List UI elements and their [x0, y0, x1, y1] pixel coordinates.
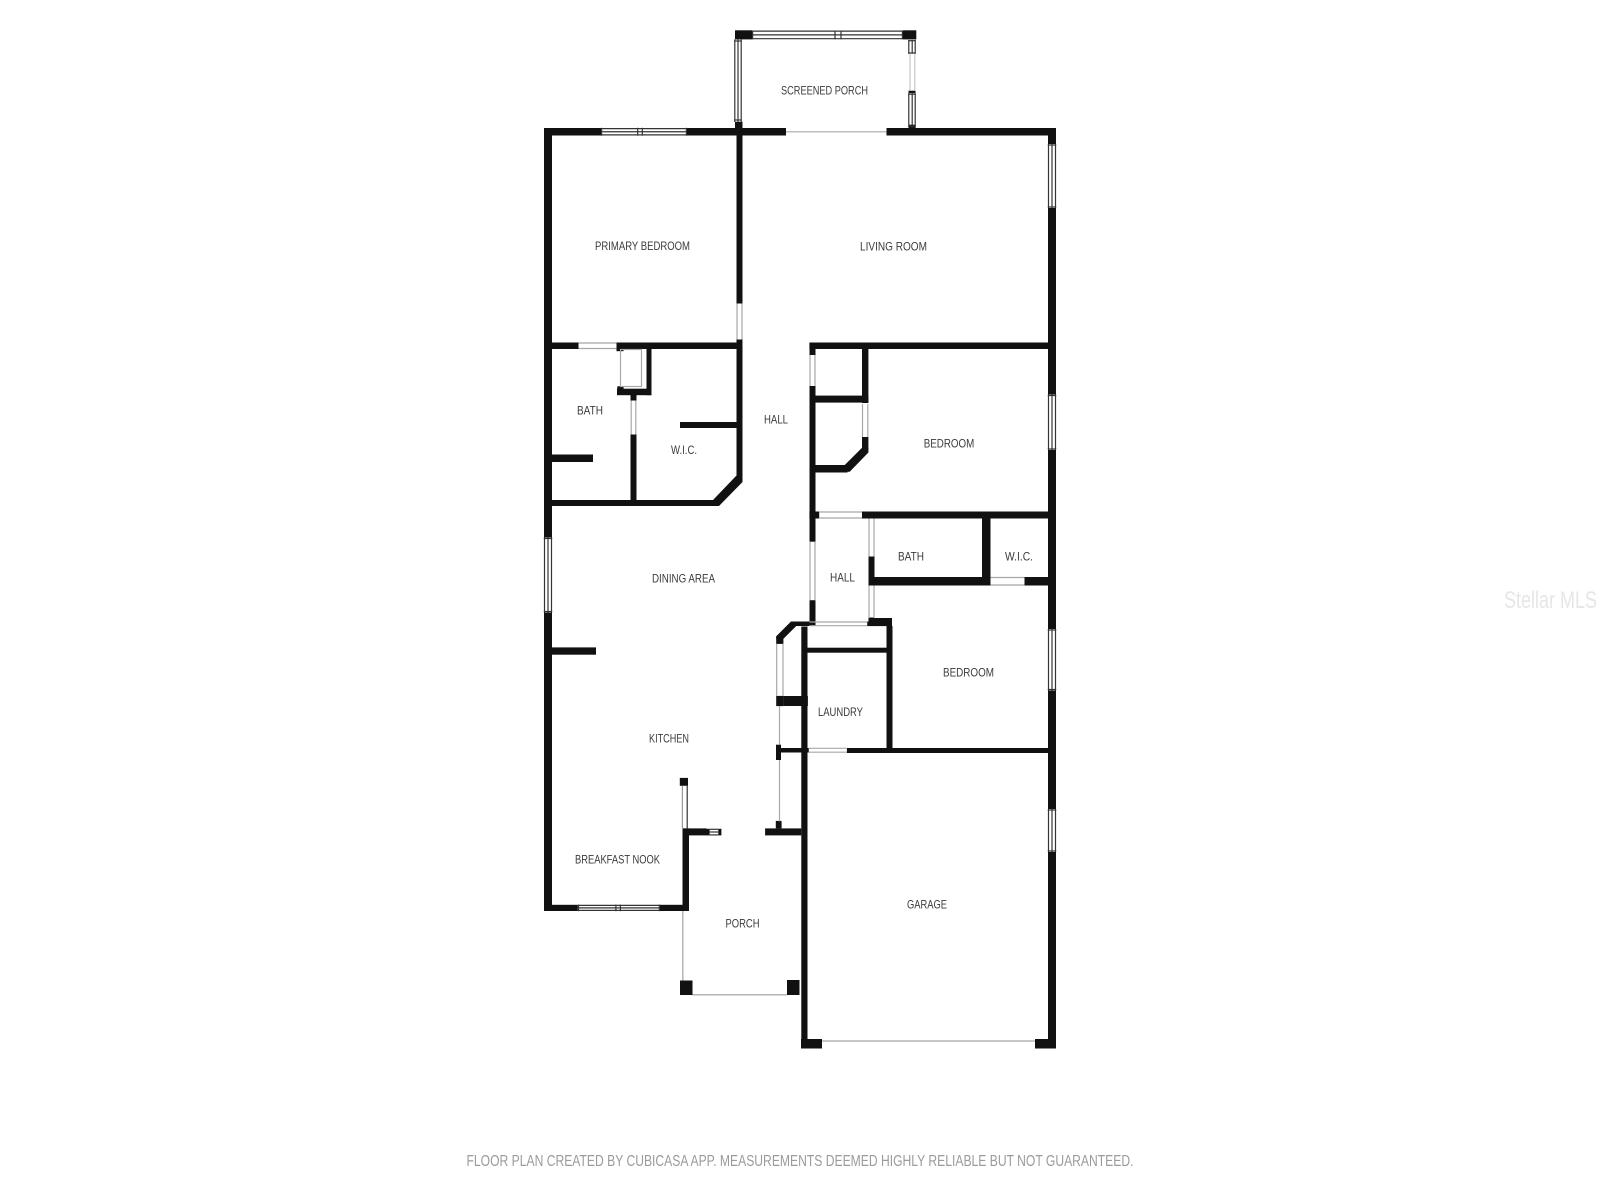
svg-text:LAUNDRY: LAUNDRY: [818, 705, 863, 719]
svg-text:BATH: BATH: [577, 404, 603, 418]
svg-text:SCREENED PORCH: SCREENED PORCH: [781, 84, 868, 98]
svg-text:W.I.C.: W.I.C.: [1005, 550, 1033, 564]
svg-text:LIVING ROOM: LIVING ROOM: [860, 240, 927, 254]
svg-text:BATH: BATH: [898, 550, 924, 564]
svg-text:W.I.C.: W.I.C.: [671, 443, 697, 457]
svg-text:BREAKFAST NOOK: BREAKFAST NOOK: [575, 853, 660, 867]
svg-text:Stellar MLS: Stellar MLS: [1504, 587, 1597, 614]
svg-text:KITCHEN: KITCHEN: [649, 732, 689, 746]
svg-text:HALL: HALL: [830, 571, 855, 585]
svg-text:PRIMARY BEDROOM: PRIMARY BEDROOM: [595, 239, 690, 253]
svg-text:FLOOR PLAN CREATED BY CUBICASA: FLOOR PLAN CREATED BY CUBICASA APP. MEAS…: [467, 1153, 1134, 1170]
svg-text:BEDROOM: BEDROOM: [924, 437, 975, 451]
svg-text:DINING AREA: DINING AREA: [652, 572, 715, 586]
svg-text:GARAGE: GARAGE: [907, 898, 947, 912]
svg-text:BEDROOM: BEDROOM: [943, 666, 994, 680]
svg-text:HALL: HALL: [764, 413, 788, 427]
svg-text:PORCH: PORCH: [726, 917, 760, 931]
